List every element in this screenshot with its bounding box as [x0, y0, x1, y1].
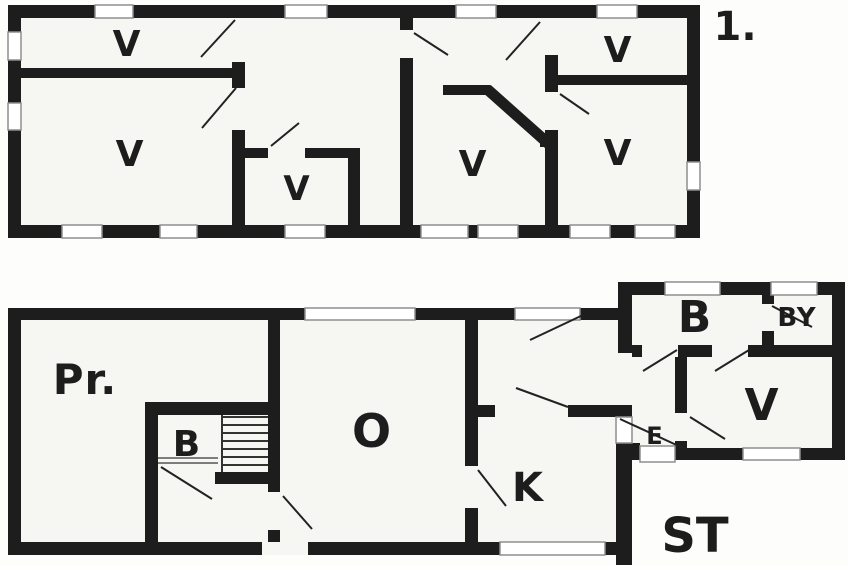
room-by-label: BY [777, 303, 816, 333]
room-e-label: E [646, 422, 663, 450]
floor-plan-page: V V V V V V 1. [0, 0, 848, 565]
floor-plan-drawing: V V V V V V 1. [0, 0, 848, 565]
room-v3-label: V [283, 169, 310, 209]
room-b-small-label: B [173, 424, 201, 465]
room-b-bath-label: B [678, 292, 713, 343]
room-k-label: K [512, 465, 545, 511]
room-v5-label: V [604, 30, 633, 71]
room-v-label: V [744, 380, 779, 431]
outside-st-label: ST [661, 508, 729, 564]
room-v6-label: V [604, 133, 633, 174]
room-pr-label: Pr. [53, 355, 117, 404]
room-v1-label: V [113, 24, 142, 65]
lower-floor-plan: Pr. B O K E B BY V ST [8, 282, 845, 565]
room-o-label: O [352, 404, 392, 458]
room-v2-label: V [116, 134, 145, 175]
upper-floor-plan: V V V V V V 1. [8, 4, 757, 238]
lower-main-area [8, 308, 632, 555]
room-v4-label: V [459, 144, 488, 185]
floor-number-label: 1. [713, 4, 756, 50]
